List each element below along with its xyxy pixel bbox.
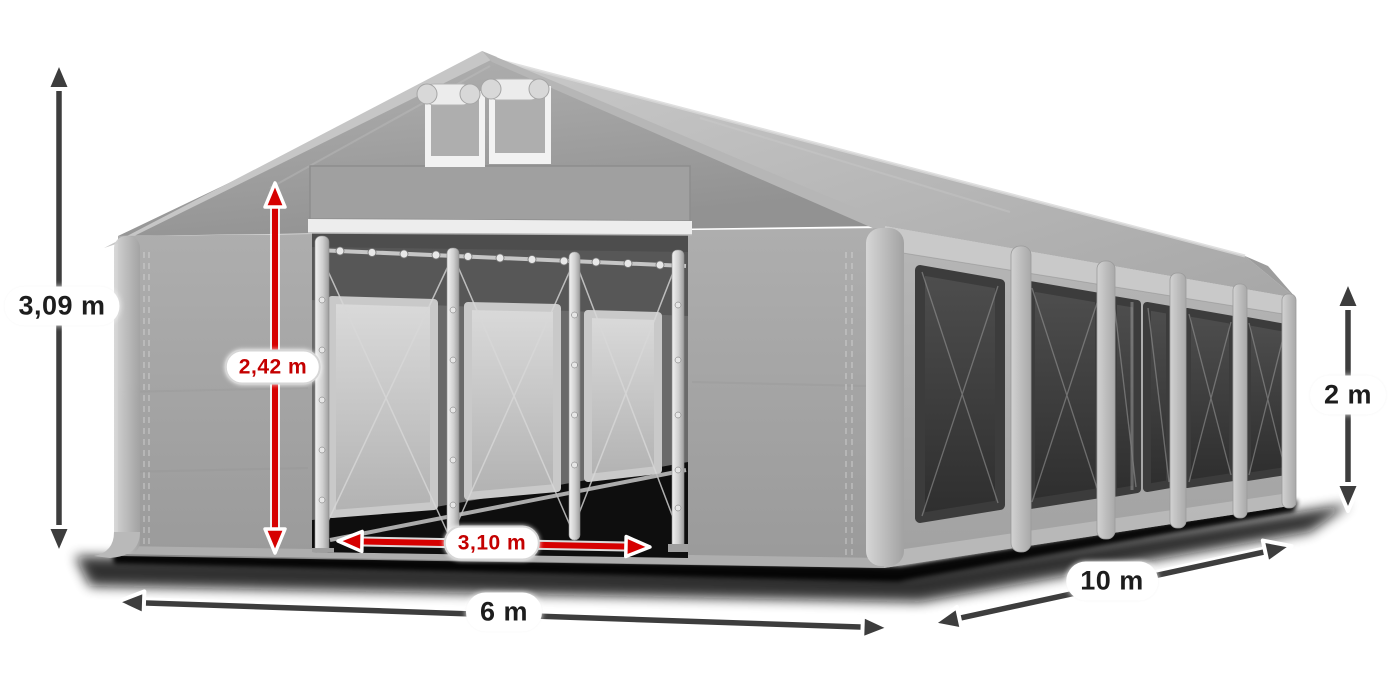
vent-roll-end <box>529 79 549 99</box>
side-post <box>1097 261 1115 539</box>
side-window-2 <box>1030 286 1100 504</box>
side-height-label: 2 m <box>1310 376 1386 415</box>
entrance-top-panel <box>310 166 690 221</box>
tent-dimension-diagram: 3,09 m 2,42 m 3,10 m 6 m 10 m 2 m <box>0 0 1400 700</box>
front-left-corner-post <box>114 236 140 554</box>
tent-illustration <box>0 0 1400 700</box>
entrance-width-label: 3,10 m <box>444 526 540 561</box>
vent-roll-end <box>460 84 480 104</box>
entrance-height-label: 2,42 m <box>225 350 321 385</box>
entrance-interior <box>310 232 692 558</box>
gable-vent-1 <box>417 84 482 165</box>
vent-roll-end <box>481 79 501 99</box>
side-post <box>1233 284 1247 518</box>
front-right-corner-post <box>866 228 904 566</box>
side-corner-post <box>1282 294 1296 508</box>
interior-pole-2 <box>569 252 580 540</box>
side-post <box>1011 246 1031 552</box>
vent-roll-end <box>417 84 437 104</box>
gable-vent-2 <box>481 79 549 162</box>
total-height-label: 3,09 m <box>4 287 119 326</box>
interior-pole-1 <box>447 248 459 546</box>
vent-sill <box>428 156 482 165</box>
vent-sill <box>492 153 548 162</box>
length-label: 10 m <box>1066 562 1158 601</box>
entrance-pole-left <box>315 236 329 554</box>
side-post <box>1170 273 1186 528</box>
side-window-1 <box>920 270 1000 518</box>
side-window-5 <box>1247 321 1286 477</box>
front-width-label: 6 m <box>466 593 542 632</box>
